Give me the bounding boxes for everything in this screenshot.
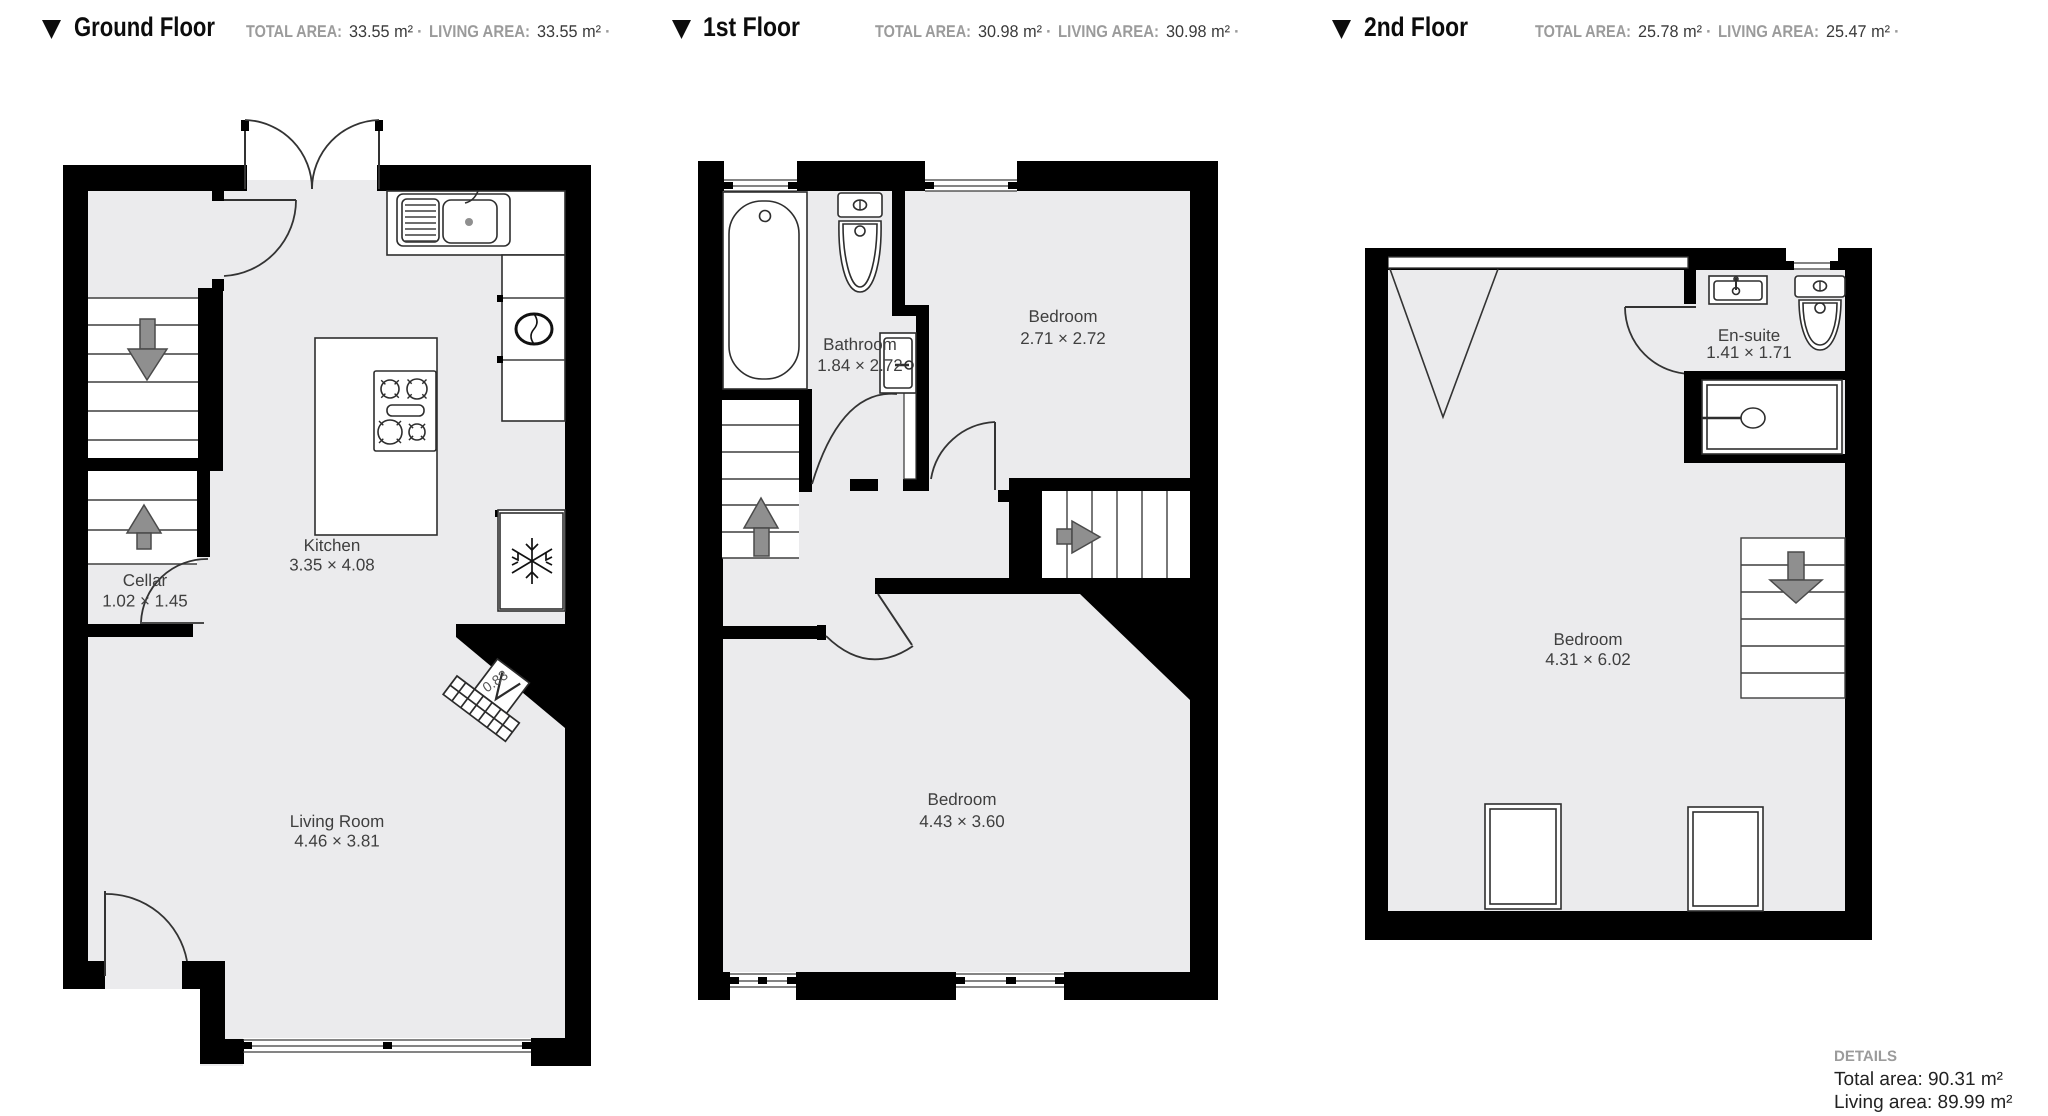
svg-text:Bedroom: Bedroom	[928, 790, 997, 809]
svg-text:1.02 × 1.45: 1.02 × 1.45	[102, 592, 188, 611]
svg-text:DETAILS: DETAILS	[1834, 1048, 1897, 1065]
svg-text:·: ·	[1706, 22, 1712, 41]
svg-text:Bathroom: Bathroom	[823, 335, 897, 354]
svg-text:·: ·	[605, 22, 611, 41]
svg-text:30.98 m²: 30.98 m²	[978, 22, 1042, 41]
svg-text:Total area: 90.31 m²: Total area: 90.31 m²	[1834, 1069, 2003, 1090]
svg-text:TOTAL AREA:: TOTAL AREA:	[246, 22, 342, 41]
svg-text:30.98 m²: 30.98 m²	[1166, 22, 1230, 41]
svg-text:Living area: 89.99 m²: Living area: 89.99 m²	[1834, 1092, 2013, 1113]
svg-text:Bedroom: Bedroom	[1554, 630, 1623, 649]
svg-text:25.78 m²: 25.78 m²	[1638, 22, 1702, 41]
svg-text:4.43 × 3.60: 4.43 × 3.60	[919, 812, 1005, 831]
svg-text:4.46 × 3.81: 4.46 × 3.81	[294, 832, 380, 851]
svg-text:Kitchen: Kitchen	[304, 536, 361, 555]
svg-text:Bedroom: Bedroom	[1029, 307, 1098, 326]
svg-text:LIVING AREA:: LIVING AREA:	[1058, 22, 1159, 41]
svg-text:33.55 m²: 33.55 m²	[349, 22, 413, 41]
svg-text:1.84 × 2.72: 1.84 × 2.72	[817, 356, 903, 375]
svg-text:Ground Floor: Ground Floor	[74, 12, 215, 42]
svg-text:3.35 × 4.08: 3.35 × 4.08	[289, 556, 375, 575]
svg-text:·: ·	[1234, 22, 1240, 41]
svg-text:LIVING AREA:: LIVING AREA:	[1718, 22, 1819, 41]
svg-text:TOTAL AREA:: TOTAL AREA:	[1535, 22, 1631, 41]
svg-text:33.55 m²: 33.55 m²	[537, 22, 601, 41]
svg-text:2nd Floor: 2nd Floor	[1364, 12, 1468, 42]
svg-text:LIVING AREA:: LIVING AREA:	[429, 22, 530, 41]
svg-text:1st Floor: 1st Floor	[703, 12, 800, 42]
svg-text:4.31 × 6.02: 4.31 × 6.02	[1545, 650, 1631, 669]
svg-text:TOTAL AREA:: TOTAL AREA:	[875, 22, 971, 41]
svg-text:·: ·	[1046, 22, 1052, 41]
svg-text:Cellar: Cellar	[123, 571, 168, 590]
svg-text:1.41 × 1.71: 1.41 × 1.71	[1706, 343, 1792, 362]
svg-text:·: ·	[1894, 22, 1900, 41]
svg-text:Living Room: Living Room	[290, 812, 385, 831]
svg-text:25.47 m²: 25.47 m²	[1826, 22, 1890, 41]
svg-text:2.71 × 2.72: 2.71 × 2.72	[1020, 329, 1106, 348]
svg-text:·: ·	[417, 22, 423, 41]
